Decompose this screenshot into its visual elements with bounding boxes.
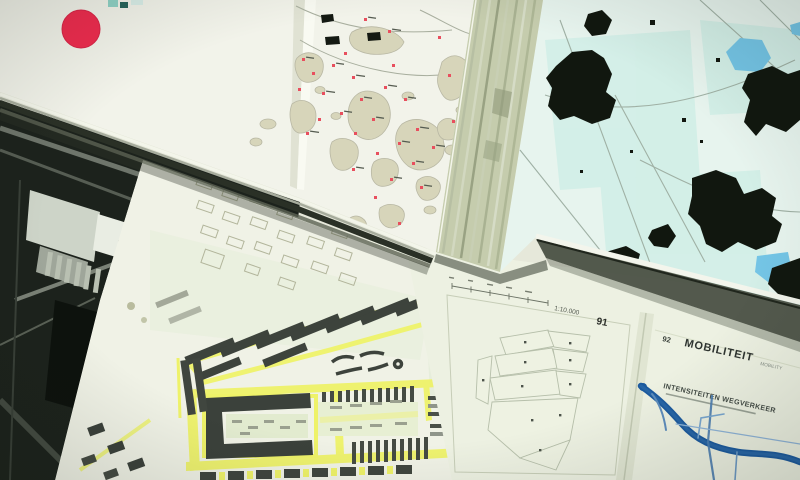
- atlas-photo: 1:10.000 91: [0, 0, 800, 480]
- vignette: [0, 0, 800, 480]
- atlas-photo-scene: 1:10.000 91: [0, 0, 800, 480]
